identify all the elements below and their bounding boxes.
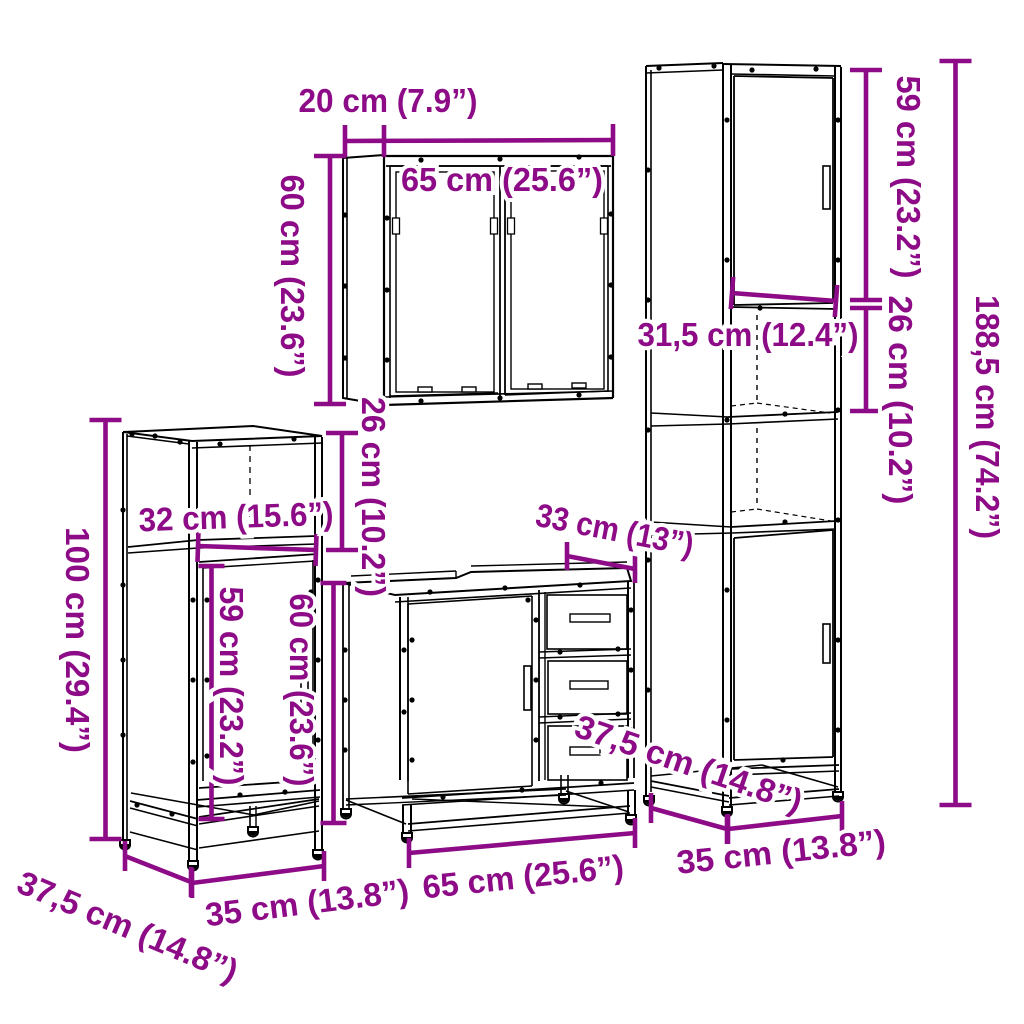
- svg-text:188,5 cm (74.2”): 188,5 cm (74.2”): [969, 295, 1006, 539]
- svg-text:26 cm (10.2”): 26 cm (10.2”): [882, 296, 919, 505]
- svg-text:59 cm (23.2”): 59 cm (23.2”): [213, 587, 250, 786]
- svg-text:60 cm (23.6”): 60 cm (23.6”): [283, 594, 320, 787]
- svg-text:26 cm (10.2”): 26 cm (10.2”): [355, 397, 392, 597]
- svg-text:100 cm (29.4”): 100 cm (29.4”): [59, 527, 96, 753]
- svg-text:31,5 cm (12.4”): 31,5 cm (12.4”): [638, 316, 859, 353]
- svg-text:60 cm (23.6”): 60 cm (23.6”): [274, 175, 311, 378]
- svg-text:59 cm (23.2”): 59 cm (23.2”): [890, 76, 927, 279]
- svg-text:20 cm (7.9”): 20 cm (7.9”): [299, 82, 478, 119]
- svg-text:65 cm (25.6”): 65 cm (25.6”): [401, 161, 603, 198]
- svg-text:32 cm (15.6”): 32 cm (15.6”): [138, 495, 334, 539]
